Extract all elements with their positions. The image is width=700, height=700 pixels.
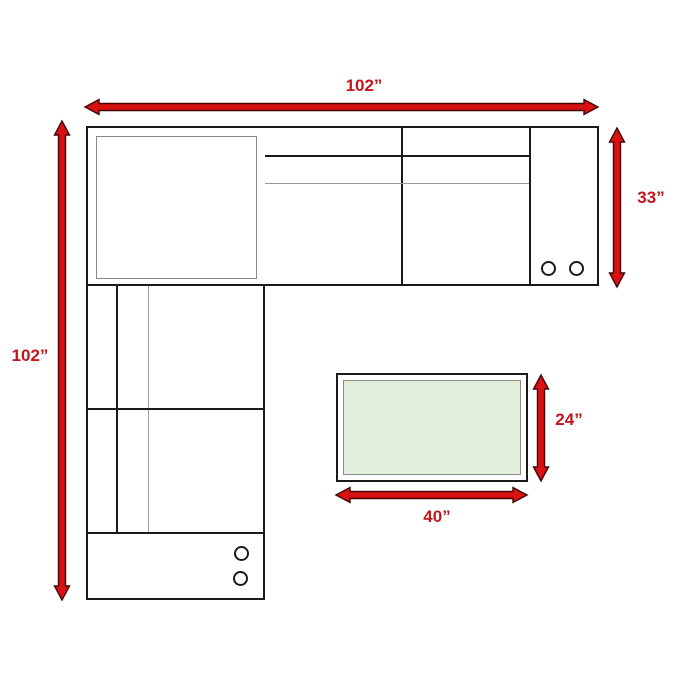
dimension-label-ottoman-width: 40” bbox=[414, 507, 460, 527]
dimension-label-ottoman-depth: 24” bbox=[546, 410, 592, 430]
dimension-label-overall-width: 102” bbox=[332, 76, 396, 96]
cupholder-circle bbox=[233, 571, 248, 586]
top-seat-divider-2 bbox=[529, 128, 531, 284]
sofa-dimension-diagram: 102” 102” 33” 24” 40” bbox=[0, 0, 700, 700]
left-seat-divider bbox=[88, 408, 263, 410]
arrow-sofa-depth bbox=[610, 128, 625, 287]
corner-back-cushion bbox=[96, 136, 257, 279]
top-seat-divider-1 bbox=[401, 128, 403, 284]
bottom-console-divider bbox=[88, 532, 263, 534]
cupholder-circle bbox=[541, 261, 556, 276]
arrow-overall-width bbox=[85, 100, 598, 115]
arrow-overall-depth bbox=[55, 121, 70, 600]
dimension-label-sofa-depth: 33” bbox=[628, 188, 674, 208]
arrow-ottoman-width bbox=[336, 488, 527, 503]
cupholder-circle bbox=[234, 546, 249, 561]
ottoman-top-surface bbox=[343, 380, 521, 475]
cupholder-circle bbox=[569, 261, 584, 276]
top-backrest-line bbox=[265, 155, 529, 157]
top-cushion-line bbox=[265, 183, 529, 184]
dimension-label-overall-depth: 102” bbox=[4, 346, 56, 366]
